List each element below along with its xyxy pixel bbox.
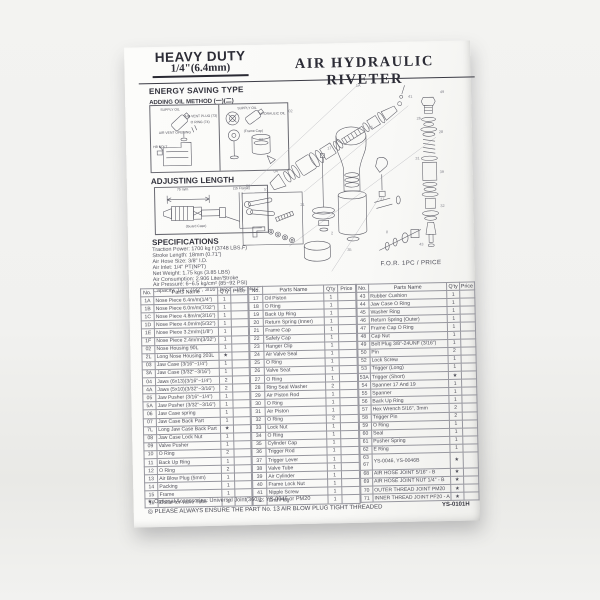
column-header: No. — [141, 289, 154, 297]
part-no: 05 — [143, 394, 156, 402]
exploded-diagram: 1A 02 03 04 06 15 17 20 21 26 28 31 39 3… — [228, 77, 460, 282]
part-no: 5A — [143, 402, 156, 410]
part-no: 59 — [359, 422, 371, 430]
part-no: 1E — [141, 329, 154, 337]
part-qty: 1 — [220, 392, 233, 400]
svg-text:26: 26 — [417, 116, 421, 120]
svg-text:39: 39 — [440, 170, 444, 174]
part-no: 4A — [143, 386, 156, 394]
part-no: 04 — [142, 378, 155, 386]
svg-text:1A: 1A — [356, 84, 361, 88]
part-name: INNER THREAD JOINT PF20 - A — [373, 492, 452, 502]
part-qty: 1 — [219, 336, 232, 344]
part-no: 53 — [358, 365, 370, 373]
parts-table-grid-1: No.Parts NameQ'tyPrice1ANose Piece 6.4m/… — [140, 286, 252, 508]
part-no: 12 — [144, 467, 157, 475]
svg-text:04: 04 — [274, 169, 278, 173]
part-no: 43 — [356, 292, 368, 300]
part-price — [463, 452, 479, 468]
diagram-callouts: 1A 02 03 04 06 15 17 20 21 26 28 31 39 3… — [244, 82, 448, 254]
part-qty: 1 — [328, 495, 342, 503]
model-code: YS-0101H — [442, 502, 470, 510]
parts-table-grid-2: No.Parts NameQ'tyPrice17Oil Piston118O R… — [248, 284, 360, 506]
svg-text:21: 21 — [300, 203, 304, 207]
part-qty: 2 — [326, 382, 340, 390]
svg-text:32: 32 — [440, 204, 444, 208]
part-no: 60 — [359, 430, 371, 438]
part-qty: 1 — [325, 317, 339, 325]
part-no: 06 — [143, 410, 156, 418]
part-no: 46 — [357, 316, 369, 324]
parts-table-group-2: No.Parts NameQ'tyPrice17Oil Piston118O R… — [248, 284, 360, 506]
parts-table-group-3: No.Parts NameQ'tyPrice43Rubber Cushion14… — [356, 281, 480, 503]
part-no: 55 — [358, 389, 370, 397]
part-no: 15 — [145, 491, 158, 499]
part-qty: 1 — [219, 360, 232, 368]
part-no: 62 — [360, 446, 372, 454]
part-qty: 1 — [218, 295, 231, 303]
part-qty: ★ — [449, 371, 462, 379]
label-air-vent-plug: AIR VENT PLUG (73) — [184, 115, 217, 119]
part-qty: 1 — [220, 408, 233, 416]
part-qty: 1 — [327, 439, 341, 447]
part-qty: 2 — [220, 376, 233, 384]
part-qty: 1 — [328, 463, 342, 471]
svg-text:37: 37 — [380, 197, 384, 201]
label-hb-bolt: HB BOLT — [153, 146, 167, 150]
label-guard-case: (Guard Case) — [186, 225, 207, 229]
part-qty: 1 — [448, 355, 461, 363]
part-qty: 1 — [325, 325, 339, 333]
manual-page: HEAVY DUTY 1/4"(6.4mm) AIR HYDRAULIC RIV… — [124, 40, 480, 527]
column-header: No. — [356, 284, 368, 292]
part-qty: ★ — [221, 425, 234, 433]
part-qty: 1 — [220, 400, 233, 408]
svg-text:15: 15 — [369, 125, 373, 129]
part-no: 10 — [144, 450, 157, 458]
label-o-ring-74: O RING (74) — [191, 121, 210, 125]
part-no: 07 — [143, 418, 156, 426]
part-qty: 1 — [324, 309, 338, 317]
part-qty: 1 — [324, 293, 338, 301]
part-qty: 1 — [327, 406, 341, 414]
part-qty: 1 — [221, 457, 234, 465]
parts-table-group-1: No.Parts NameQ'tyPrice1ANose Piece 6.4m/… — [140, 286, 252, 508]
part-qty: 1 — [449, 387, 462, 395]
svg-text:06: 06 — [246, 184, 250, 188]
part-qty: 1 — [449, 363, 462, 371]
part-qty: 2 — [221, 449, 234, 457]
part-qty: 1 — [326, 398, 340, 406]
part-qty: 2 — [448, 347, 461, 355]
part-qty: 1 — [325, 333, 339, 341]
part-qty: 1 — [218, 303, 231, 311]
part-qty: 1 — [219, 327, 232, 335]
column-header: Q'ty — [218, 287, 231, 295]
part-qty: 1 — [447, 290, 460, 298]
part-qty: 1 — [326, 374, 340, 382]
parts-table: No.Parts NameQ'tyPrice1ANose Piece 6.4m/… — [140, 281, 480, 507]
svg-text:41: 41 — [408, 95, 412, 99]
part-qty: 2 — [449, 404, 462, 412]
part-price — [342, 495, 360, 503]
part-qty: 1 — [219, 368, 232, 376]
price-note: F.O.R. 1PC / PRICE — [381, 259, 442, 267]
part-name: YS-0046, YS-0046B — [372, 452, 451, 469]
oil-method-panel-1: SUPPLY OIL AIR VENT PLUG (73) O RING (74… — [150, 105, 219, 172]
part-no: 71 — [361, 494, 373, 502]
part-no: 57 — [359, 405, 371, 413]
part-no: 7L — [143, 426, 156, 434]
part-no: 54 — [358, 381, 370, 389]
part-no: 48 — [357, 333, 369, 341]
part-qty: 1 — [448, 323, 461, 331]
part-qty: 1 — [450, 436, 463, 444]
part-qty: 1 — [221, 441, 234, 449]
part-qty: ★ — [451, 484, 464, 492]
part-qty: ★ — [451, 476, 464, 484]
svg-text:03: 03 — [259, 138, 263, 142]
label-supply-oil-1: SUPPLY OIL — [160, 109, 180, 113]
part-no: 1F — [142, 337, 155, 345]
part-no: 1C — [141, 313, 154, 321]
part-no: 47 — [357, 325, 369, 333]
part-no: 69 — [360, 478, 372, 486]
part-qty: 1 — [326, 366, 340, 374]
part-qty: 2 — [450, 412, 463, 420]
part-no: 53A — [358, 373, 370, 381]
part-qty: 1 — [450, 420, 463, 428]
part-qty: 2 — [221, 465, 234, 473]
part-no: 49 — [357, 341, 369, 349]
part-qty: 1 — [218, 311, 231, 319]
svg-text:17: 17 — [327, 146, 331, 150]
part-qty: 1 — [324, 301, 338, 309]
part-no: 14 — [145, 483, 158, 491]
part-no: 45 — [357, 308, 369, 316]
label-75mm: 75 m/m — [177, 188, 188, 192]
part-qty: 1 — [448, 331, 461, 339]
part-price — [464, 492, 479, 500]
svg-text:31: 31 — [415, 157, 419, 161]
part-no: 6367 — [360, 454, 373, 470]
part-qty: 1 — [218, 319, 231, 327]
part-qty: 1 — [328, 455, 342, 463]
part-no: 52 — [358, 357, 370, 365]
part-no: 1A — [141, 297, 154, 305]
part-qty: 1 — [222, 481, 235, 489]
part-no: 11 — [144, 459, 157, 467]
svg-text:02: 02 — [288, 109, 292, 113]
part-qty: 1 — [325, 341, 339, 349]
part-no: 70 — [360, 486, 372, 494]
part-qty: 1 — [328, 471, 342, 479]
part-no: 56 — [359, 397, 371, 405]
part-no: 3A — [142, 370, 155, 378]
part-qty: 1 — [222, 473, 235, 481]
part-qty: 1 — [449, 379, 462, 387]
part-qty: 1 — [450, 428, 463, 436]
part-qty: 1 — [447, 306, 460, 314]
part-no: 58 — [359, 414, 371, 422]
parts-table-grid-3: No.Parts NameQ'tyPrice43Rubber Cushion14… — [356, 281, 480, 503]
part-qty: 1 — [221, 433, 234, 441]
part-no: 1D — [141, 321, 154, 329]
part-qty: 1 — [328, 487, 342, 495]
svg-text:35: 35 — [347, 248, 351, 252]
part-no: 1B — [141, 305, 154, 313]
part-qty: 1 — [448, 339, 461, 347]
part-qty: 2 — [327, 414, 341, 422]
part-no: 61 — [359, 438, 371, 446]
part-qty: 1 — [327, 447, 341, 455]
part-no: 44 — [357, 300, 369, 308]
part-qty: 1 — [222, 489, 235, 497]
brand-block: HEAVY DUTY 1/4"(6.4mm) — [152, 49, 249, 78]
part-qty: ★ — [219, 352, 232, 360]
part-qty: 1 — [449, 395, 462, 403]
part-qty: ★ — [451, 468, 464, 476]
part-no: 13 — [144, 475, 157, 483]
part-no: 2L — [142, 353, 155, 361]
label-air-vent-opening: AIR VENT OPENING — [159, 131, 191, 135]
part-qty: 1 — [448, 315, 461, 323]
part-no: 09 — [144, 442, 157, 450]
part-no: 02 — [142, 345, 155, 353]
part-qty: 1 — [450, 444, 463, 452]
svg-text:49: 49 — [440, 90, 444, 94]
part-qty: 1 — [220, 416, 233, 424]
part-qty: 1 — [326, 390, 340, 398]
part-qty: ★ — [450, 452, 463, 468]
part-qty: 1 — [328, 479, 342, 487]
svg-text:57: 57 — [264, 188, 268, 192]
part-qty: 1 — [447, 298, 460, 306]
part-qty: ★ — [451, 492, 464, 500]
svg-text:28: 28 — [439, 130, 443, 134]
adjusting-length-heading: ADJUSTING LENGTH — [151, 175, 234, 186]
part-no: 08 — [144, 434, 157, 442]
part-qty: 2 — [220, 384, 233, 392]
svg-text:43: 43 — [419, 242, 423, 246]
part-no: 50 — [358, 349, 370, 357]
part-no: 68 — [360, 470, 372, 478]
part-no: 03 — [142, 361, 155, 369]
part-qty: 1 — [219, 344, 232, 352]
column-header: Q'ty — [447, 282, 460, 290]
